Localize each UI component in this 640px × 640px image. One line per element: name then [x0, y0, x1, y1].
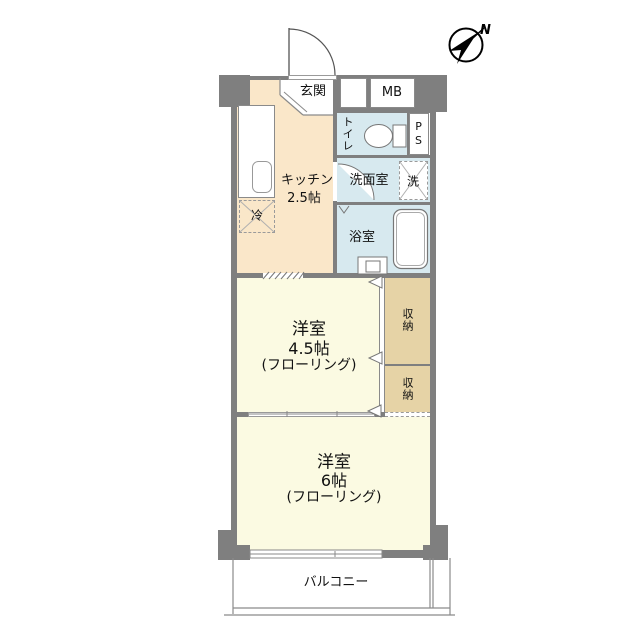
kitchen-sink	[253, 162, 272, 193]
toilet-label: トイレ	[341, 116, 353, 152]
washer-label: 洗	[407, 175, 419, 188]
closet-lower-label: 収納	[401, 377, 413, 401]
floor-plan: N 玄関 MB トイレ PS 洗面室 洗 浴室 キッチン 2.5帖 冷 洋室 4…	[0, 0, 640, 640]
kitchen-size-label: 2.5帖	[287, 192, 321, 206]
washroom-label: 洗面室	[349, 174, 388, 188]
western-room-6-floor: (フローリング)	[287, 490, 382, 505]
meter-box-label: MB	[382, 86, 402, 100]
western-room-6-label: 洋室	[317, 454, 351, 473]
genkan-label: 玄関	[300, 85, 326, 99]
fridge-label: 冷	[251, 209, 263, 222]
bathroom-label: 浴室	[349, 231, 375, 245]
bath-step-box	[358, 257, 387, 274]
compass-north-label: N	[480, 23, 491, 38]
toilet-bowl	[365, 125, 393, 148]
western-room-45-label: 洋室	[292, 321, 326, 340]
closet-door-triangle-3	[368, 405, 381, 417]
western-room-45-floor: (フローリング)	[262, 358, 357, 373]
kitchen-label: キッチン	[281, 174, 333, 188]
balcony-label: バルコニー	[304, 576, 369, 590]
western-room-45-size: 4.5帖	[288, 340, 329, 358]
western-room-6-size: 6帖	[321, 472, 347, 490]
bath-door-mark	[339, 206, 349, 213]
entrance-door-arc	[289, 29, 335, 75]
closet-door-triangle-1	[369, 276, 382, 288]
pipe-space-label: PS	[412, 120, 424, 148]
toilet-tank	[393, 125, 406, 147]
closet-door-triangle-2	[369, 352, 382, 364]
closet-upper-label: 収納	[401, 308, 413, 332]
bathtub-outer	[394, 210, 428, 269]
